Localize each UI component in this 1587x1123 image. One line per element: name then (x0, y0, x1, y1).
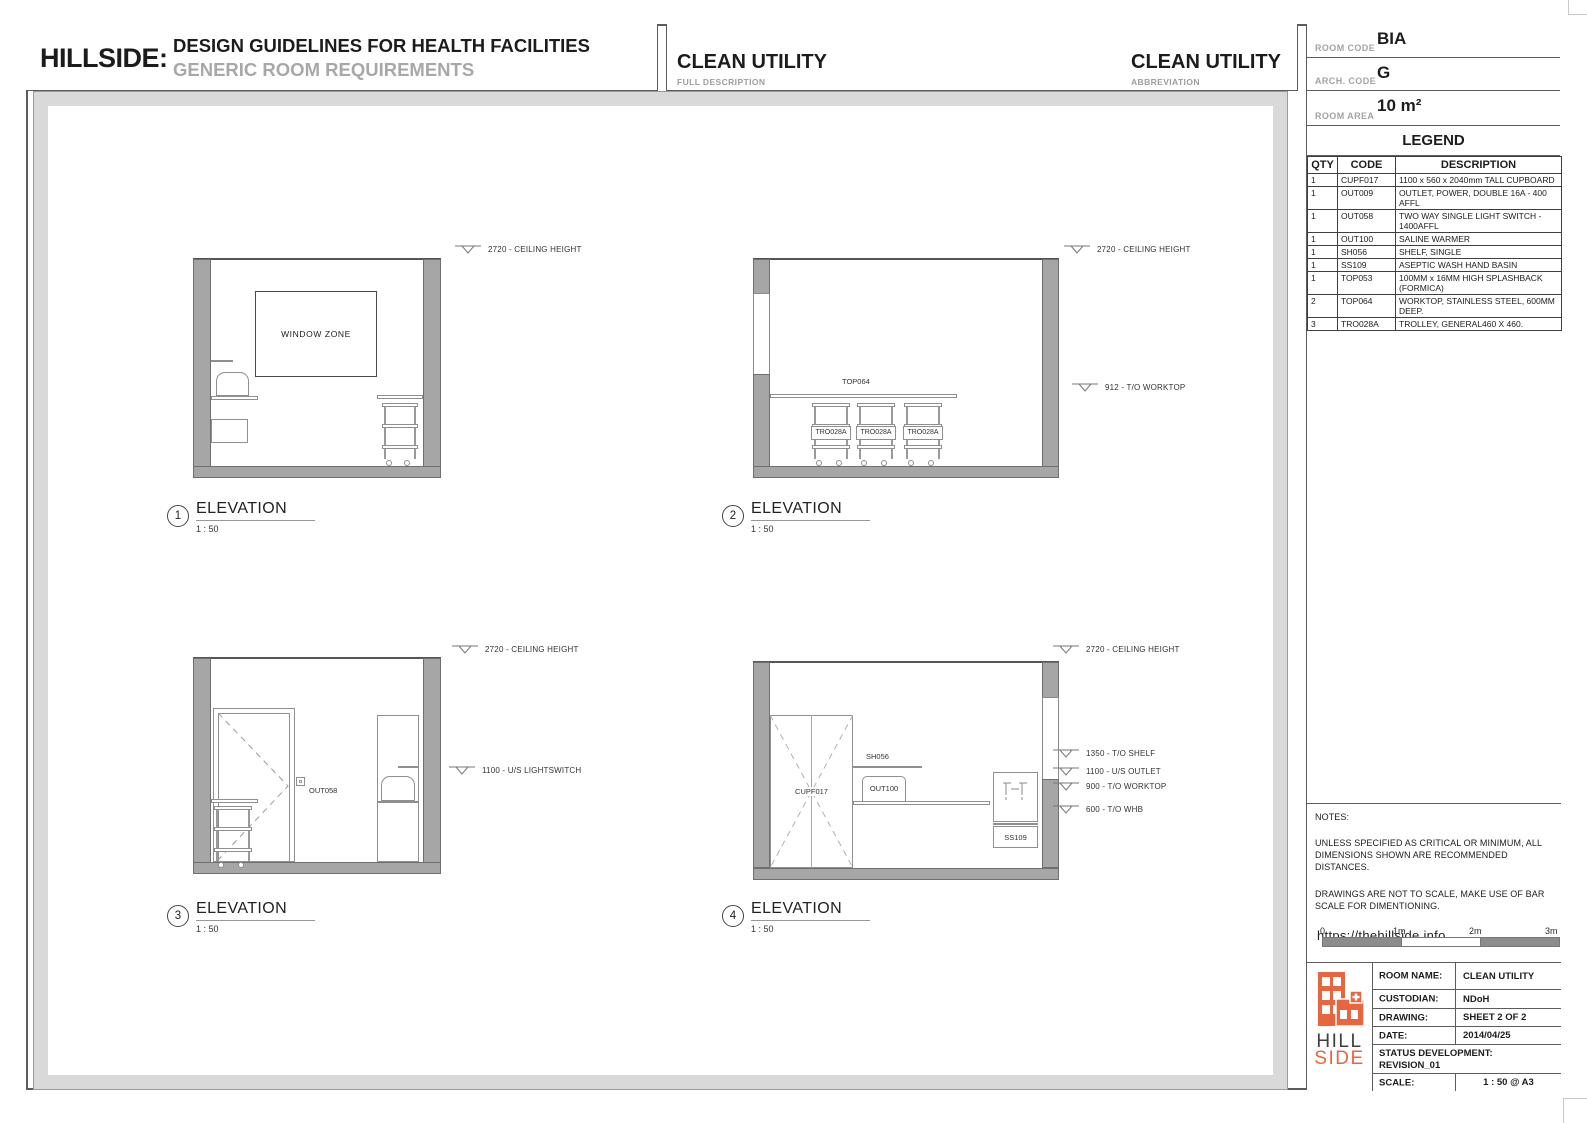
header-brand-box: HILLSIDE: DESIGN GUIDELINES FOR HEALTH F… (26, 24, 658, 91)
shelf-line (853, 766, 922, 768)
custodian-row: CUSTODIAN: NDoH (1373, 990, 1561, 1009)
arch-code-value: G (1377, 63, 1390, 83)
shelf-line (211, 360, 233, 362)
elevation-name: ELEVATION (196, 900, 315, 921)
status-row: STATUS DEVELOPMENT: REVISION_01 (1373, 1045, 1561, 1074)
notes-section: NOTES: UNLESS SPECIFIED AS CRITICAL OR M… (1307, 803, 1561, 949)
title-block: HILL SIDE ROOM NAME: CLEAN UTILITY CUSTO… (1307, 962, 1561, 1090)
legend-col-description: DESCRIPTION (1396, 157, 1562, 174)
datum-text: 2720 - CEILING HEIGHT (488, 245, 582, 254)
datum-annotation: 1100 - U/S LIGHTSWITCH (449, 765, 581, 775)
qty: 1 (1308, 259, 1338, 272)
header-room-box: CLEAN UTILITY FULL DESCRIPTION CLEAN UTI… (666, 24, 1298, 91)
qty: 1 (1308, 187, 1338, 210)
bar-scale-segment (1481, 938, 1559, 946)
taps-icon (994, 779, 1037, 807)
datum-text: 1100 - U/S OUTLET (1086, 767, 1161, 776)
worktop-line (211, 396, 258, 400)
corner-mark (1568, 0, 1569, 14)
room-area-value: 10 m² (1377, 96, 1421, 116)
basin-cabinet: SS109 (993, 826, 1038, 848)
datum-text: 2720 - CEILING HEIGHT (485, 645, 579, 654)
warmer-label: OUT100 (870, 784, 898, 793)
wall (193, 658, 211, 863)
cupboard-divider (378, 801, 418, 803)
room-abbreviation: CLEAN UTILITY (1131, 51, 1281, 74)
room-full-description: CLEAN UTILITY (677, 51, 827, 74)
abbreviation-group: CLEAN UTILITY ABBREVIATION (1131, 51, 1281, 87)
ceiling-line (753, 661, 1059, 663)
qty: 3 (1308, 318, 1338, 331)
trolley-label: TRO028A (903, 426, 943, 440)
wall (753, 662, 770, 868)
trolley-icon (382, 403, 418, 466)
level-datum-icon (1053, 781, 1079, 791)
elevation-2-title: 2 ELEVATION 1 : 50 (722, 500, 870, 534)
code: OUT058 (1338, 210, 1396, 233)
bar-scale-tick: 2m (1469, 926, 1482, 936)
legend-table: QTY CODE DESCRIPTION 1CUPF0171100 x 560 … (1307, 156, 1562, 331)
datum-text: 2720 - CEILING HEIGHT (1086, 645, 1180, 654)
row-label: CUSTODIAN: (1379, 994, 1438, 1005)
description: 1100 x 560 x 2040mm TALL CUPBOARD (1396, 174, 1562, 187)
code: OUT009 (1338, 187, 1396, 210)
bar-scale-tick: 3m (1545, 926, 1558, 936)
level-datum-icon (1064, 244, 1090, 254)
legend-row: 3TRO028ATROLLEY, GENERAL460 X 460. (1308, 318, 1562, 331)
drawing-sheet: HILLSIDE: DESIGN GUIDELINES FOR HEALTH F… (0, 0, 1587, 1123)
legend-row: 1OUT100SALINE WARMER (1308, 233, 1562, 246)
row-value: CLEAN UTILITY (1455, 963, 1561, 989)
logo-text-side: SIDE (1307, 1050, 1372, 1067)
wall (753, 374, 770, 467)
wall (1042, 259, 1059, 467)
saline-warmer-icon: OUT100 (862, 776, 906, 802)
title-block-rows: ROOM NAME: CLEAN UTILITY CUSTODIAN: NDoH… (1373, 963, 1561, 1091)
code: TRO028A (1338, 318, 1396, 331)
elevation-name: ELEVATION (751, 900, 870, 921)
light-switch-icon (296, 777, 305, 786)
elevation-1-title: 1 ELEVATION 1 : 50 (167, 500, 315, 534)
legend-row: 1TOP053100MM x 16MM HIGH SPLASHBACK (FOR… (1308, 272, 1562, 295)
scale-row: SCALE: 1 : 50 @ A3 (1373, 1074, 1561, 1091)
shelf-line (398, 766, 419, 768)
row-label: ROOM NAME: (1379, 971, 1442, 982)
corner-mark (1568, 14, 1587, 15)
corner-mark (1563, 1098, 1587, 1099)
worktop-line (377, 395, 423, 399)
wall (423, 259, 441, 467)
room-code-value: BIA (1377, 29, 1406, 49)
description: WORKTOP, STAINLESS STEEL, 600MM DEEP. (1396, 295, 1562, 318)
status-label: STATUS DEVELOPMENT: (1379, 1048, 1493, 1059)
notes-paragraph: UNLESS SPECIFIED AS CRITICAL OR MINIMUM,… (1315, 837, 1553, 873)
room-area-label: ROOM AREA (1315, 111, 1374, 121)
elevation-number: 4 (722, 905, 744, 927)
level-datum-icon (1072, 382, 1098, 392)
trolley-icon: TRO028A (812, 403, 850, 466)
level-datum-icon (1053, 644, 1079, 654)
info-panel: ROOM CODE BIA ARCH. CODE G ROOM AREA 10 … (1306, 24, 1560, 1090)
description: SALINE WARMER (1396, 233, 1562, 246)
trolley-icon (214, 806, 252, 868)
datum-text: 2720 - CEILING HEIGHT (1097, 245, 1191, 254)
wall (753, 259, 770, 294)
datum-text: 912 - T/O WORKTOP (1105, 383, 1185, 392)
legend-row: 1OUT009OUTLET, POWER, DOUBLE 16A - 400 A… (1308, 187, 1562, 210)
wall (1042, 662, 1059, 698)
worktop-line (211, 799, 258, 803)
wall (1042, 779, 1059, 868)
date-row: DATE: 2014/04/25 (1373, 1027, 1561, 1045)
legend-row: 1OUT058TWO WAY SINGLE LIGHT SWITCH - 140… (1308, 210, 1562, 233)
datum-annotation: 900 - T/O WORKTOP (1053, 781, 1166, 791)
elevation-name: ELEVATION (751, 500, 870, 521)
ceiling-line (753, 258, 1059, 260)
sheet-title: DESIGN GUIDELINES FOR HEALTH FACILITIES (173, 35, 590, 56)
elevation-3-title: 3 ELEVATION 1 : 50 (167, 900, 315, 934)
shelf-label: SH056 (866, 752, 889, 761)
datum-annotation: 2720 - CEILING HEIGHT (1064, 244, 1191, 254)
datum-text: 900 - T/O WORKTOP (1086, 782, 1166, 791)
room-code-label: ROOM CODE (1315, 43, 1375, 53)
floor-wall (753, 868, 1059, 880)
basin-label: SS109 (1004, 833, 1027, 842)
wash-hand-basin (993, 772, 1038, 822)
datum-text: 1100 - U/S LIGHTSWITCH (482, 766, 581, 775)
full-description-group: CLEAN UTILITY FULL DESCRIPTION (677, 51, 827, 87)
elevation-number: 1 (167, 505, 189, 527)
description: ASEPTIC WASH HAND BASIN (1396, 259, 1562, 272)
datum-annotation: 600 - T/O WHB (1053, 804, 1143, 814)
description: 100MM x 16MM HIGH SPLASHBACK (FORMICA) (1396, 272, 1562, 295)
arch-code-label: ARCH. CODE (1315, 76, 1376, 86)
description: TWO WAY SINGLE LIGHT SWITCH - 1400AFFL (1396, 210, 1562, 233)
ceiling-line (193, 258, 441, 260)
full-description-label: FULL DESCRIPTION (677, 77, 827, 87)
code: SS109 (1338, 259, 1396, 272)
notes-title: NOTES: (1315, 811, 1553, 823)
row-value: 2014/04/25 (1455, 1027, 1561, 1044)
code: TOP053 (1338, 272, 1396, 295)
datum-text: 600 - T/O WHB (1086, 805, 1143, 814)
datum-text: 1350 - T/O SHELF (1086, 749, 1155, 758)
bar-scale-segment (1401, 938, 1481, 946)
datum-annotation: 1350 - T/O SHELF (1053, 748, 1155, 758)
row-label: DATE: (1379, 1030, 1407, 1041)
level-datum-icon (1053, 748, 1079, 758)
saline-warmer-icon (216, 372, 249, 396)
datum-annotation: 2720 - CEILING HEIGHT (452, 644, 579, 654)
code: OUT100 (1338, 233, 1396, 246)
level-datum-icon (452, 644, 478, 654)
trolley-icon: TRO028A (857, 403, 895, 466)
status-value: REVISION_01 (1379, 1060, 1440, 1071)
legend-header-row: QTY CODE DESCRIPTION (1308, 157, 1562, 174)
brand-name: HILLSIDE: (40, 43, 168, 74)
description: SHELF, SINGLE (1396, 246, 1562, 259)
qty: 1 (1308, 272, 1338, 295)
code: TOP064 (1338, 295, 1396, 318)
qty: 1 (1308, 246, 1338, 259)
sheet-subtitle: GENERIC ROOM REQUIREMENTS (173, 59, 590, 80)
bar-scale (1322, 937, 1560, 947)
qty: 1 (1308, 210, 1338, 233)
abbreviation-label: ABBREVIATION (1131, 77, 1281, 87)
worktop-line (853, 801, 990, 805)
legend-row: 2TOP064WORKTOP, STAINLESS STEEL, 600MM D… (1308, 295, 1562, 318)
qty: 1 (1308, 174, 1338, 187)
description: OUTLET, POWER, DOUBLE 16A - 400 AFFL (1396, 187, 1562, 210)
legend-title: LEGEND (1307, 126, 1560, 156)
row-label: SCALE: (1379, 1077, 1414, 1088)
legend-row: 1SH056SHELF, SINGLE (1308, 246, 1562, 259)
level-datum-icon (455, 244, 481, 254)
room-area-row: ROOM AREA 10 m² (1307, 91, 1560, 126)
hillside-logo-icon (1314, 972, 1366, 1028)
cabinet-icon (211, 419, 248, 443)
elevation-scale: 1 : 50 (196, 524, 315, 534)
legend-col-code: CODE (1338, 157, 1396, 174)
floor-wall (753, 466, 1059, 478)
code: SH056 (1338, 246, 1396, 259)
window-opening (753, 293, 770, 375)
window-zone: WINDOW ZONE (255, 291, 377, 377)
worktop-label: TOP064 (842, 377, 870, 386)
code: CUPF017 (1338, 174, 1396, 187)
bar-scale-tick: 0 (1320, 926, 1325, 936)
row-value: NDoH (1455, 990, 1561, 1008)
drawing-frame (33, 91, 1288, 1090)
bar-scale-segment (1323, 938, 1401, 946)
drawing-row: DRAWING: SHEET 2 OF 2 (1373, 1009, 1561, 1027)
wall (193, 259, 211, 467)
trolley-label: TRO028A (811, 426, 851, 440)
datum-annotation: 2720 - CEILING HEIGHT (1053, 644, 1180, 654)
worktop-line (770, 394, 957, 398)
trolley-icon: TRO028A (904, 403, 942, 466)
elevation-scale: 1 : 50 (196, 924, 315, 934)
level-datum-icon (449, 765, 475, 775)
switch-label: OUT058 (309, 786, 337, 795)
arch-code-row: ARCH. CODE G (1307, 58, 1560, 91)
legend-col-qty: QTY (1308, 157, 1338, 174)
elevation-4-title: 4 ELEVATION 1 : 50 (722, 900, 870, 934)
logo-cell: HILL SIDE (1307, 963, 1373, 1091)
room-code-row: ROOM CODE BIA (1307, 24, 1560, 58)
trolley-label: TRO028A (856, 426, 896, 440)
elevation-name: ELEVATION (196, 500, 315, 521)
window-zone-label: WINDOW ZONE (281, 329, 351, 339)
legend-row: 1SS109ASEPTIC WASH HAND BASIN (1308, 259, 1562, 272)
header-titles: DESIGN GUIDELINES FOR HEALTH FACILITIES … (173, 35, 590, 81)
elevation-number: 3 (167, 905, 189, 927)
elevation-scale: 1 : 50 (751, 924, 870, 934)
elevation-number: 2 (722, 505, 744, 527)
datum-annotation: 912 - T/O WORKTOP (1072, 382, 1185, 392)
datum-annotation: 1100 - U/S OUTLET (1053, 766, 1161, 776)
row-value: SHEET 2 OF 2 (1455, 1009, 1561, 1026)
description: TROLLEY, GENERAL460 X 460. (1396, 318, 1562, 331)
room-name-row: ROOM NAME: CLEAN UTILITY (1373, 963, 1561, 990)
qty: 1 (1308, 233, 1338, 246)
row-value: 1 : 50 @ A3 (1455, 1074, 1561, 1091)
cupboard-label: CUPF017 (770, 787, 853, 796)
row-label: DRAWING: (1379, 1012, 1428, 1023)
bar-scale-tick: 1m (1393, 926, 1406, 936)
elevation-scale: 1 : 50 (751, 524, 870, 534)
notes-paragraph: DRAWINGS ARE NOT TO SCALE, MAKE USE OF B… (1315, 888, 1553, 912)
floor-wall (193, 466, 441, 478)
datum-annotation: 2720 - CEILING HEIGHT (455, 244, 582, 254)
ceiling-line (193, 657, 441, 659)
basin-divider (993, 823, 1038, 825)
level-datum-icon (1053, 804, 1079, 814)
legend-row: 1CUPF0171100 x 560 x 2040mm TALL CUPBOAR… (1308, 174, 1562, 187)
corner-mark (1563, 1098, 1564, 1123)
wall (423, 658, 441, 863)
appliance-icon (381, 776, 415, 801)
level-datum-icon (1053, 766, 1079, 776)
qty: 2 (1308, 295, 1338, 318)
